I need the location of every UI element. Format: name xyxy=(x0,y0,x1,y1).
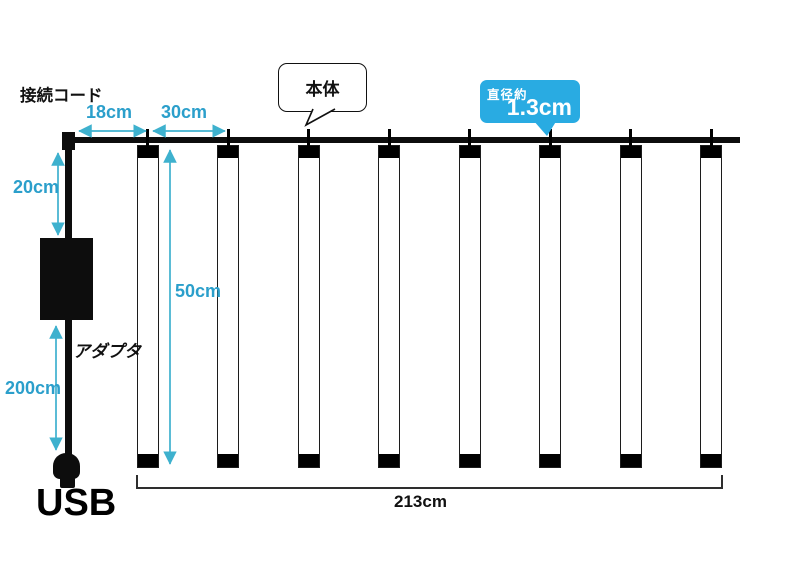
light-tube xyxy=(700,145,722,468)
main-body-callout: 本体 xyxy=(278,63,367,112)
dim-20cm-label: 20cm xyxy=(13,177,59,198)
tube-hanger-stub xyxy=(468,129,471,147)
tube-cap-top xyxy=(379,146,399,158)
tube-cap-bottom xyxy=(218,454,238,467)
tube-hanger-stub xyxy=(227,129,230,147)
tube-cap-top xyxy=(621,146,641,158)
tube-cap-top xyxy=(138,146,158,158)
dim-50cm-label: 50cm xyxy=(175,281,221,302)
tube-cap-bottom xyxy=(621,454,641,467)
usb-plug-body xyxy=(53,453,80,479)
total-width-bracket xyxy=(137,475,722,488)
light-tube xyxy=(378,145,400,468)
tube-hanger-stub xyxy=(388,129,391,147)
dim-213cm-label: 213cm xyxy=(394,492,447,512)
usb-label: USB xyxy=(36,482,116,525)
light-tube xyxy=(459,145,481,468)
main-body-label: 本体 xyxy=(306,75,340,100)
main-cable-bar xyxy=(62,137,740,143)
tube-cap-top xyxy=(299,146,319,158)
tube-cap-top xyxy=(540,146,560,158)
tube-cap-bottom xyxy=(299,454,319,467)
tube-cap-bottom xyxy=(701,454,721,467)
dim-18cm-label: 18cm xyxy=(86,102,132,123)
adapter-box xyxy=(40,238,93,320)
product-dimension-diagram: 本体 直径約 1.3cm 接続コード 18cm 30cm 20cm 50cm 2… xyxy=(0,0,800,566)
light-tube xyxy=(620,145,642,468)
tube-cap-bottom xyxy=(460,454,480,467)
light-tube xyxy=(137,145,159,468)
light-tube xyxy=(298,145,320,468)
tube-hanger-stub xyxy=(629,129,632,147)
diameter-value-label: 1.3cm xyxy=(507,94,572,121)
tube-cap-top xyxy=(460,146,480,158)
tube-hanger-stub xyxy=(710,129,713,147)
dim-30cm-label: 30cm xyxy=(161,102,207,123)
tube-cap-bottom xyxy=(138,454,158,467)
tube-cap-top xyxy=(701,146,721,158)
tube-cap-bottom xyxy=(379,454,399,467)
tube-hanger-stub xyxy=(146,129,149,147)
diameter-badge: 直径約 1.3cm xyxy=(480,80,580,123)
adapter-label: アダプタ xyxy=(73,337,141,362)
tube-hanger-stub xyxy=(549,129,552,147)
tube-hanger-stub xyxy=(307,129,310,147)
tube-cap-bottom xyxy=(540,454,560,467)
light-tube xyxy=(217,145,239,468)
cable-end-connector xyxy=(62,132,75,150)
light-tube xyxy=(539,145,561,468)
tube-cap-top xyxy=(218,146,238,158)
dim-200cm-label: 200cm xyxy=(5,378,61,399)
